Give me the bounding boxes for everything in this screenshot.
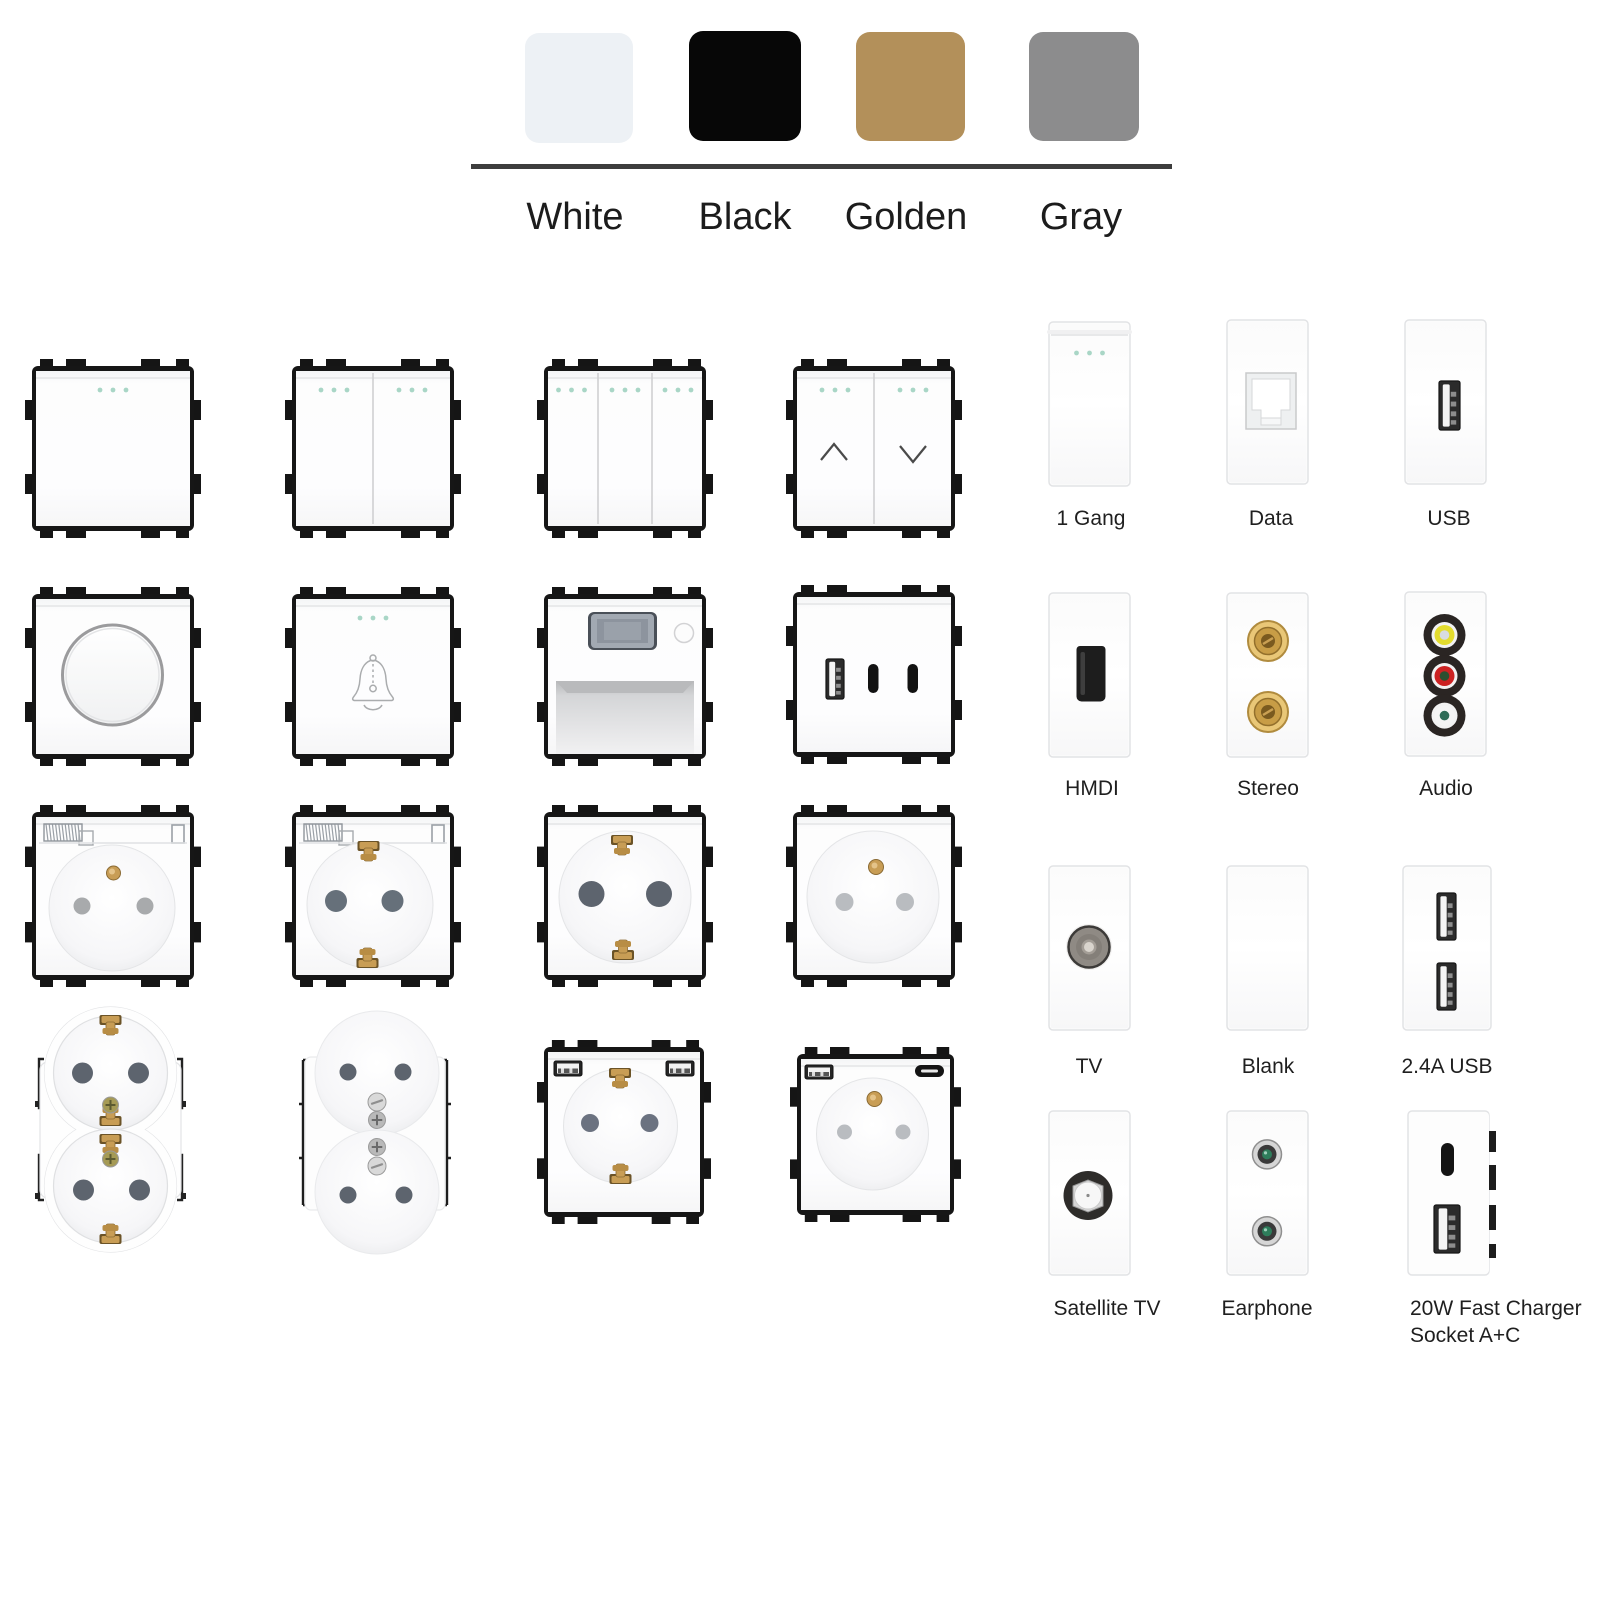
svg-text:1 Gang: 1 Gang <box>1057 507 1126 530</box>
svg-text:Earphone: Earphone <box>1221 1297 1312 1320</box>
svg-text:Socket A+C: Socket A+C <box>1410 1324 1520 1347</box>
svg-text:TV: TV <box>1076 1055 1103 1078</box>
svg-text:Golden: Golden <box>845 196 968 238</box>
svg-text:Blank: Blank <box>1242 1055 1295 1078</box>
svg-text:Stereo: Stereo <box>1237 777 1299 800</box>
svg-text:White: White <box>526 196 623 238</box>
svg-text:Black: Black <box>699 196 793 238</box>
svg-text:2.4A USB: 2.4A USB <box>1401 1055 1492 1078</box>
svg-text:HMDI: HMDI <box>1065 777 1119 800</box>
svg-text:USB: USB <box>1427 507 1470 530</box>
svg-text:Data: Data <box>1249 507 1294 530</box>
svg-text:20W Fast Charger: 20W Fast Charger <box>1410 1297 1582 1320</box>
svg-text:Audio: Audio <box>1419 777 1473 800</box>
svg-text:Satellite TV: Satellite TV <box>1054 1297 1161 1320</box>
svg-text:Gray: Gray <box>1040 196 1122 238</box>
